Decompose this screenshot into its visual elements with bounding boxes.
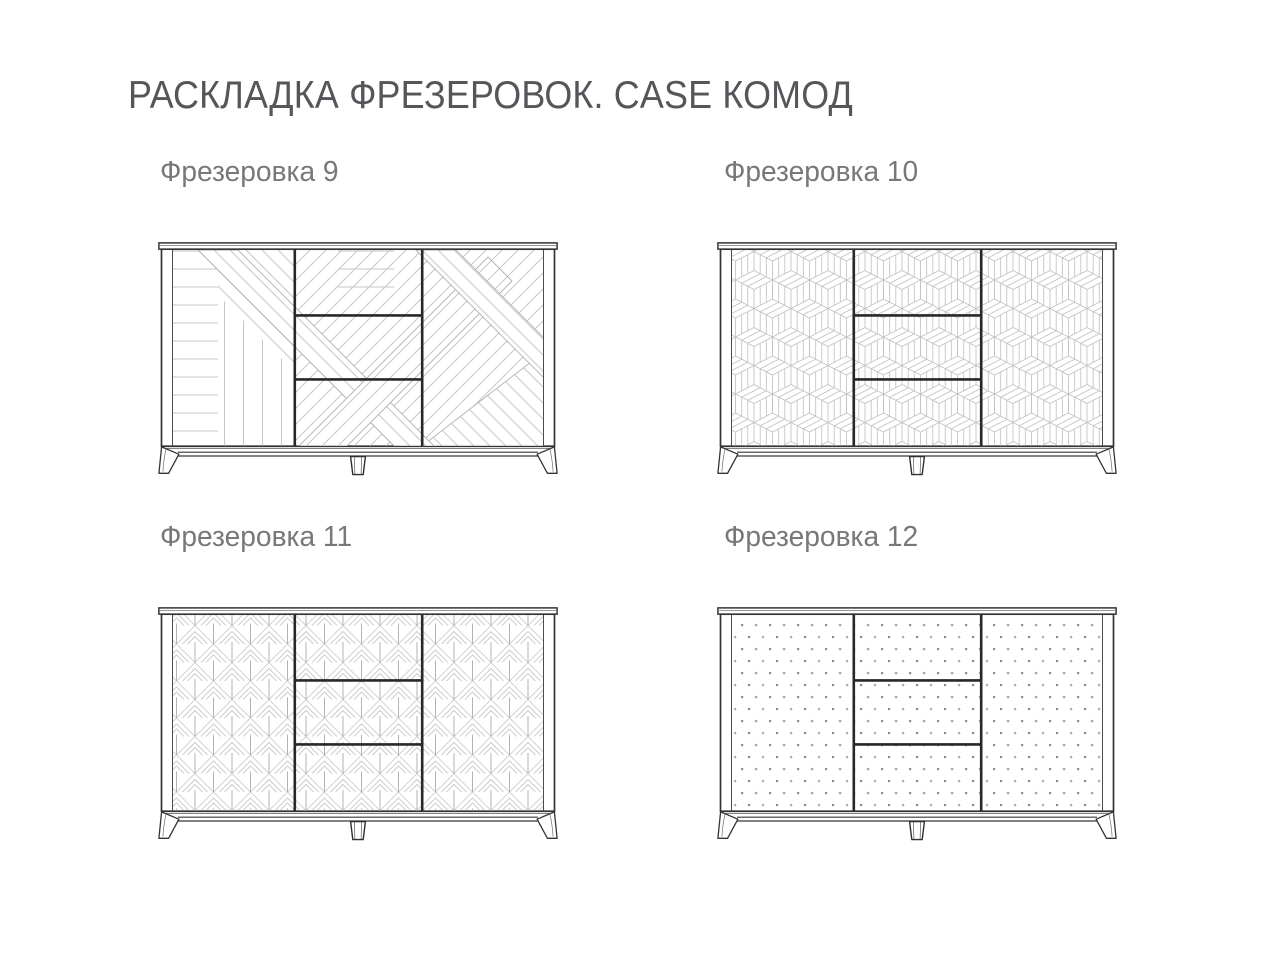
right-leg bbox=[537, 447, 557, 473]
right-leg bbox=[537, 812, 557, 838]
cabinet-drawing-frezerovka-12 bbox=[717, 607, 1117, 843]
right-leg bbox=[1096, 447, 1116, 473]
right-leg bbox=[1096, 812, 1116, 838]
variant-card: Фрезеровка 9 bbox=[158, 156, 588, 486]
page-title: РАСКЛАДКА ФРЕЗЕРОВОК. CASE КОМОД bbox=[128, 74, 853, 118]
center-leg bbox=[910, 457, 925, 475]
variant-label: Фрезеровка 11 bbox=[160, 521, 352, 554]
top-board bbox=[159, 243, 557, 249]
base-rail bbox=[737, 452, 1097, 456]
base-rail bbox=[178, 817, 538, 821]
variant-card: Фрезеровка 10 bbox=[717, 156, 1147, 486]
left-leg bbox=[718, 812, 738, 838]
cabinet-drawing-frezerovka-11 bbox=[158, 607, 558, 843]
left-leg bbox=[718, 447, 738, 473]
cabinet-front-view bbox=[158, 242, 558, 478]
variant-label: Фрезеровка 10 bbox=[724, 156, 918, 189]
center-leg bbox=[351, 822, 366, 840]
base-rail bbox=[737, 817, 1097, 821]
top-board bbox=[718, 243, 1116, 249]
front-pattern bbox=[732, 250, 1103, 446]
cabinet-front-view bbox=[158, 607, 558, 843]
base-rail bbox=[178, 452, 538, 456]
variant-label: Фрезеровка 9 bbox=[160, 156, 339, 189]
top-board bbox=[718, 608, 1116, 614]
cabinet-front-view bbox=[717, 607, 1117, 843]
left-leg bbox=[159, 447, 179, 473]
front-pattern bbox=[173, 250, 544, 478]
variant-label: Фрезеровка 12 bbox=[724, 521, 918, 554]
front-pattern bbox=[173, 615, 544, 811]
cabinet-drawing-frezerovka-10 bbox=[717, 242, 1117, 478]
front-pattern bbox=[732, 615, 1103, 811]
variant-card: Фрезеровка 11 bbox=[158, 521, 588, 851]
cabinet-front-view bbox=[717, 242, 1117, 478]
cabinet-drawing-frezerovka-9 bbox=[158, 242, 558, 478]
center-leg bbox=[910, 822, 925, 840]
center-leg bbox=[351, 457, 366, 475]
variant-card: Фрезеровка 12 bbox=[717, 521, 1147, 851]
left-leg bbox=[159, 812, 179, 838]
top-board bbox=[159, 608, 557, 614]
